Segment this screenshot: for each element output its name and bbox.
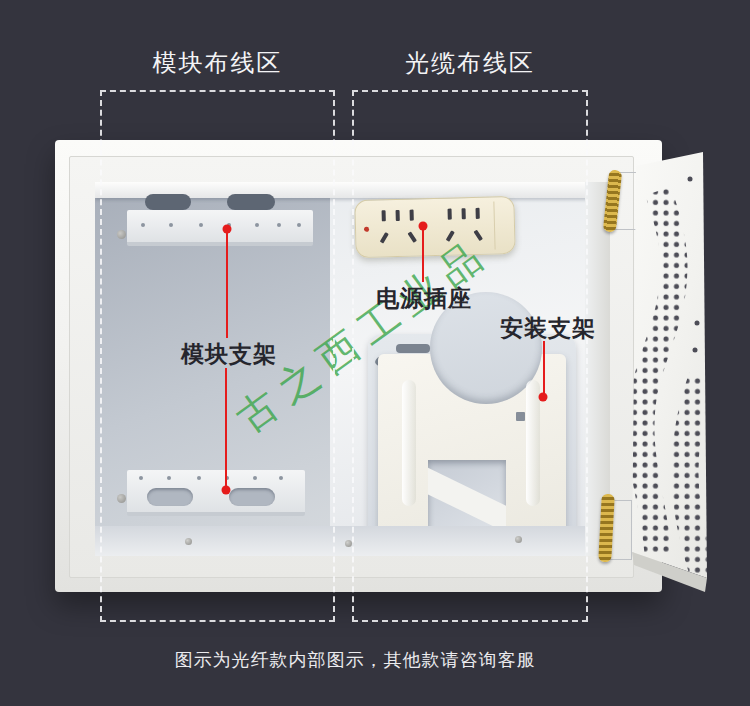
leader-line-module-bracket-top — [226, 232, 228, 338]
product-annotation-image: 模块布线区 光缆布线区 — [0, 0, 750, 706]
power-socket-label: 电源插座 — [376, 283, 472, 314]
fiber-wiring-zone-label: 光缆布线区 — [352, 48, 588, 78]
fiber-wiring-zone-outline — [352, 90, 588, 622]
leader-dot-mount-bracket — [539, 393, 548, 402]
leader-dot-module-bracket-bottom — [222, 486, 231, 495]
module-wiring-zone-label: 模块布线区 — [100, 48, 335, 78]
module-bracket-label: 模块支架 — [181, 339, 277, 370]
leader-line-mount-bracket — [543, 341, 545, 393]
leader-line-module-bracket-bottom — [225, 368, 227, 487]
leader-line-power-socket — [422, 229, 424, 282]
mount-bracket-label: 安装支架 — [500, 313, 596, 344]
bottom-caption: 图示为光纤款内部图示，其他款请咨询客服 — [175, 648, 536, 672]
